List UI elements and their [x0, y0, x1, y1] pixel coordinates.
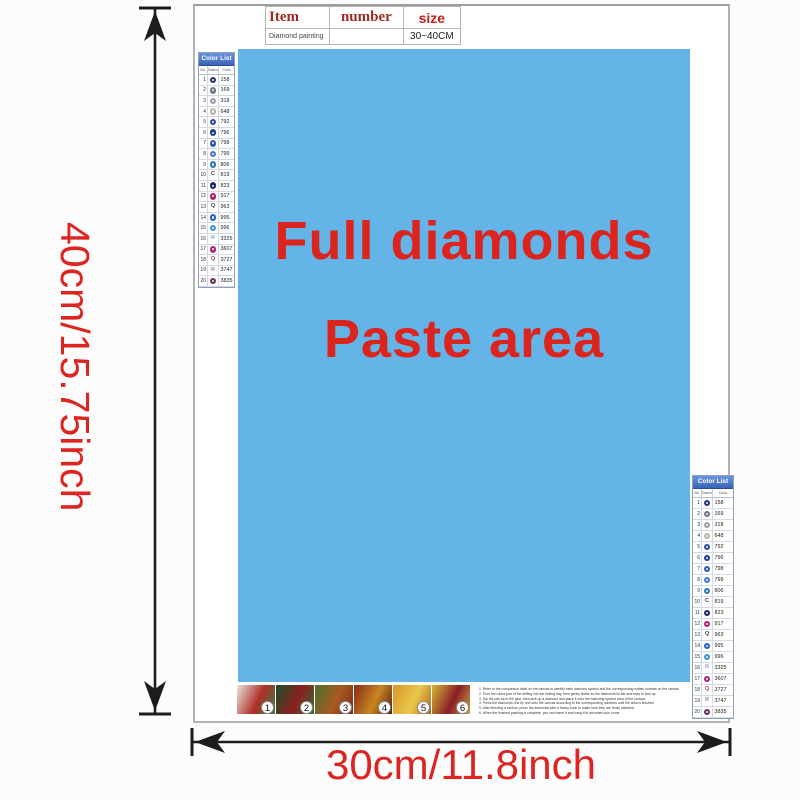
diamond-color-swatch [704, 522, 711, 529]
color-row-symbol [208, 107, 219, 117]
step-image-6: 6 [432, 685, 470, 714]
color-row-code: 806 [219, 162, 234, 168]
color-list-row: 8799 [199, 149, 234, 160]
color-row-symbol: Q [208, 202, 219, 212]
color-row-code: 3325 [713, 665, 733, 671]
color-row-symbol [208, 117, 219, 127]
color-row-code: 819 [219, 172, 234, 178]
color-list-col-diamond: Diamond [702, 489, 713, 497]
diamond-color-swatch [704, 555, 711, 562]
step-image-2: 2 [276, 685, 314, 714]
diamond-color-swatch [704, 610, 711, 617]
diamond-color-swatch [704, 533, 711, 540]
color-list-row: 3318 [693, 520, 733, 531]
color-list-row: 14995 [199, 213, 234, 224]
diamond-color-swatch [210, 193, 217, 200]
color-row-number: 7 [199, 139, 208, 149]
diamond-symbol-letter: C [211, 172, 215, 178]
diamond-color-swatch [210, 108, 217, 115]
width-dimension-label: 30cm/11.8inch [187, 744, 735, 786]
color-row-code: 3835 [219, 278, 234, 284]
color-row-symbol [208, 86, 219, 96]
color-row-code: 3727 [713, 687, 733, 693]
color-row-code: 158 [219, 77, 234, 83]
diamond-color-swatch [210, 151, 217, 158]
color-list-row: 14995 [693, 641, 733, 652]
diamond-color-swatch [704, 621, 711, 628]
diamond-color-swatch [704, 500, 711, 507]
color-list-row: 13Q963 [693, 630, 733, 641]
color-list-column-headers: No. Diamond Color [693, 489, 733, 498]
diamond-color-swatch [210, 119, 217, 126]
color-row-code: 917 [713, 621, 733, 627]
height-dimension-arrow [132, 3, 178, 719]
color-row-code: 3747 [219, 267, 234, 273]
color-row-code: 648 [713, 533, 733, 539]
color-row-code: 169 [713, 511, 733, 517]
color-row-number: 12 [693, 619, 702, 629]
color-row-code: 806 [713, 588, 733, 594]
color-list-row: 6796 [199, 128, 234, 139]
color-row-number: 13 [693, 630, 702, 640]
color-row-symbol [208, 96, 219, 106]
diamond-color-swatch [210, 161, 217, 168]
color-row-number: 17 [693, 674, 702, 684]
color-row-code: 3607 [219, 246, 234, 252]
diamond-color-swatch [210, 214, 217, 221]
color-list-row: 12917 [693, 619, 733, 630]
color-row-number: 16 [199, 234, 208, 244]
color-row-code: 318 [219, 98, 234, 104]
step-number-badge: 4 [378, 701, 391, 714]
color-list-row: 19R3747 [199, 266, 234, 277]
color-list-row: 173607 [693, 674, 733, 685]
color-row-number: 13 [199, 202, 208, 212]
color-row-symbol: Q [702, 630, 713, 640]
color-row-symbol [702, 575, 713, 585]
item-info-table: Item number size Diamond painting 30~40C… [265, 6, 461, 45]
color-row-number: 9 [199, 160, 208, 170]
color-row-code: 996 [713, 654, 733, 660]
color-row-number: 4 [199, 107, 208, 117]
paste-area: Full diamonds Paste area [238, 49, 690, 682]
color-row-number: 20 [199, 276, 208, 286]
color-list-row: 16R3325 [199, 234, 234, 245]
color-list-title: Color List [199, 53, 234, 66]
color-row-symbol [702, 553, 713, 563]
color-list-row: 16R3325 [693, 663, 733, 674]
color-row-code: 995 [219, 215, 234, 221]
diamond-symbol-letter: Q [211, 257, 215, 263]
color-row-number: 6 [693, 553, 702, 563]
item-table-header-row: Item number size [266, 7, 460, 28]
color-row-code: 798 [713, 566, 733, 572]
diamond-symbol-letter: R [211, 268, 215, 274]
item-table-header-item: Item [266, 7, 330, 28]
color-row-symbol: R [208, 234, 219, 244]
color-row-symbol [208, 213, 219, 223]
color-row-symbol [702, 619, 713, 629]
diamond-color-swatch [704, 577, 711, 584]
color-row-number: 3 [199, 96, 208, 106]
instruction-text: 1. Refer to the comparison table on the … [479, 687, 707, 717]
diamond-color-swatch [704, 588, 711, 595]
color-row-number: 10 [693, 597, 702, 607]
color-row-symbol: Q [208, 255, 219, 265]
color-row-code: 963 [713, 632, 733, 638]
color-list-row: 2169 [693, 509, 733, 520]
diamond-color-swatch [210, 129, 217, 136]
color-row-symbol [702, 509, 713, 519]
step-number-badge: 3 [339, 701, 352, 714]
color-row-symbol [702, 652, 713, 662]
color-row-code: 799 [713, 577, 733, 583]
item-size-value: 30~40CM [404, 29, 460, 44]
diamond-color-swatch [210, 225, 217, 232]
color-row-symbol [208, 223, 219, 233]
color-row-symbol [208, 128, 219, 138]
color-row-number: 6 [199, 128, 208, 138]
color-list-row: 7798 [693, 564, 733, 575]
color-list-title: Color List [693, 476, 733, 489]
color-row-code: 996 [219, 225, 234, 231]
color-row-number: 9 [693, 586, 702, 596]
color-row-symbol: R [208, 266, 219, 276]
color-list-row: 2169 [199, 86, 234, 97]
color-list-row: 13Q963 [199, 202, 234, 213]
step-number-badge: 5 [417, 701, 430, 714]
color-list-column-headers: No. Diamond Color [199, 66, 234, 75]
color-row-symbol: C [702, 597, 713, 607]
color-list-col-color: Color [713, 489, 733, 497]
color-row-code: 3325 [219, 236, 234, 242]
paste-area-title-line1: Full diamonds [274, 214, 653, 268]
diamond-color-swatch [210, 278, 217, 285]
color-list-row: 4648 [693, 531, 733, 542]
color-row-code: 792 [219, 119, 234, 125]
step-image-5: 5 [393, 685, 431, 714]
color-list-left: Color List No. Diamond Color 11582169331… [198, 52, 235, 288]
color-row-number: 11 [693, 608, 702, 618]
color-row-symbol [702, 641, 713, 651]
color-list-row: 15996 [693, 652, 733, 663]
color-row-symbol [208, 149, 219, 159]
color-row-code: 3747 [713, 698, 733, 704]
color-row-symbol [208, 276, 219, 286]
color-row-number: 10 [199, 170, 208, 180]
height-dimension-label: 40cm/15.75inch [54, 222, 95, 532]
color-row-number: 14 [693, 641, 702, 651]
color-row-symbol [702, 498, 713, 508]
color-row-number: 7 [693, 564, 702, 574]
color-row-number: 8 [199, 149, 208, 159]
color-row-code: 917 [219, 193, 234, 199]
diamond-color-swatch [704, 511, 711, 518]
color-row-number: 8 [693, 575, 702, 585]
color-row-symbol: R [702, 663, 713, 673]
diamond-symbol-letter: Q [705, 632, 709, 638]
diamond-color-swatch [210, 98, 217, 105]
diamond-symbol-letter: Q [211, 204, 215, 210]
color-row-number: 16 [693, 663, 702, 673]
color-row-number: 2 [199, 86, 208, 96]
color-list-col-diamond: Diamond [208, 66, 219, 74]
color-row-symbol [208, 192, 219, 202]
color-list-rows: 11582169331846485792679677988799980610C8… [693, 498, 733, 718]
step-number-badge: 1 [261, 701, 274, 714]
diamond-color-swatch [704, 654, 711, 661]
color-list-row: 173607 [199, 245, 234, 256]
color-row-number: 15 [693, 652, 702, 662]
color-list-row: 5792 [199, 117, 234, 128]
diamond-color-swatch [704, 676, 711, 683]
color-row-number: 14 [199, 213, 208, 223]
color-row-number: 19 [199, 266, 208, 276]
color-row-code: 819 [713, 599, 733, 605]
color-list-row: 4648 [199, 107, 234, 118]
color-row-code: 648 [219, 109, 234, 115]
color-row-number: 18 [199, 255, 208, 265]
paste-area-title-line2: Paste area [324, 312, 604, 366]
color-row-code: 3607 [713, 676, 733, 682]
color-row-code: 995 [713, 643, 733, 649]
color-list-row: 1158 [693, 498, 733, 509]
color-list-right: Color List No. Diamond Color 11582169331… [692, 475, 734, 719]
color-row-code: 963 [219, 204, 234, 210]
color-row-number: 1 [693, 498, 702, 508]
canvas-sheet: Item number size Diamond painting 30~40C… [193, 4, 730, 723]
color-row-symbol [208, 160, 219, 170]
item-table-value-row: Diamond painting 30~40CM [266, 28, 460, 44]
color-row-symbol [208, 245, 219, 255]
color-row-number: 12 [199, 192, 208, 202]
color-list-row: 5792 [693, 542, 733, 553]
diamond-symbol-letter: C [705, 599, 709, 605]
diamond-color-swatch [210, 246, 217, 253]
color-row-code: 792 [713, 544, 733, 550]
item-table-header-size: size [404, 7, 460, 28]
diamond-symbol-letter: R [705, 665, 709, 671]
color-row-number: 5 [199, 117, 208, 127]
diamond-color-swatch [210, 140, 217, 147]
color-list-row: 9806 [199, 160, 234, 171]
color-row-number: 3 [693, 520, 702, 530]
color-list-row: 10C819 [199, 170, 234, 181]
color-row-code: 798 [219, 140, 234, 146]
color-list-row: 10C819 [693, 597, 733, 608]
color-list-row: 12917 [199, 192, 234, 203]
step-image-1: 1 [237, 685, 275, 714]
color-list-rows: 11582169331846485792679677988799980610C8… [199, 75, 234, 287]
color-row-symbol [702, 608, 713, 618]
color-row-symbol [208, 75, 219, 85]
item-name-value: Diamond painting [266, 29, 330, 44]
color-list-row: 7798 [199, 139, 234, 150]
color-row-number: 17 [199, 245, 208, 255]
color-list-col-no: No. [693, 489, 702, 497]
color-row-number: 2 [693, 509, 702, 519]
color-row-code: 796 [219, 130, 234, 136]
color-list-col-no: No. [199, 66, 208, 74]
color-row-number: 11 [199, 181, 208, 191]
color-row-symbol [208, 139, 219, 149]
color-list-row: 15996 [199, 223, 234, 234]
diamond-symbol-letter: R [211, 236, 215, 242]
color-row-code: 796 [713, 555, 733, 561]
color-row-code: 823 [219, 183, 234, 189]
color-list-col-color: Color [219, 66, 234, 74]
item-table-header-number: number [330, 7, 404, 28]
color-row-code: 3727 [219, 257, 234, 263]
color-row-symbol [702, 520, 713, 530]
diamond-color-swatch [704, 643, 711, 650]
color-row-number: 1 [199, 75, 208, 85]
color-row-code: 3835 [713, 709, 733, 715]
color-row-code: 799 [219, 151, 234, 157]
step-image-3: 3 [315, 685, 353, 714]
color-list-row: 1158 [199, 75, 234, 86]
color-list-row: 8799 [693, 575, 733, 586]
color-list-row: 203835 [199, 276, 234, 287]
step-image-4: 4 [354, 685, 392, 714]
diamond-color-swatch [210, 87, 217, 94]
instruction-line: 6. When the finished painting is complet… [479, 711, 707, 716]
item-number-value [330, 29, 404, 44]
color-row-symbol [208, 181, 219, 191]
color-list-row: 9806 [693, 586, 733, 597]
color-row-symbol [702, 542, 713, 552]
color-list-row: 3318 [199, 96, 234, 107]
color-list-row: 18Q3727 [199, 255, 234, 266]
diamond-color-swatch [210, 182, 217, 189]
color-row-code: 158 [713, 500, 733, 506]
color-row-number: 15 [199, 223, 208, 233]
color-row-symbol [702, 531, 713, 541]
color-row-symbol [702, 674, 713, 684]
color-row-code: 823 [713, 610, 733, 616]
color-list-row: 11823 [693, 608, 733, 619]
color-row-symbol [702, 586, 713, 596]
diamond-color-swatch [704, 566, 711, 573]
step-number-badge: 2 [300, 701, 313, 714]
color-list-row: 6796 [693, 553, 733, 564]
color-row-number: 5 [693, 542, 702, 552]
color-row-code: 318 [713, 522, 733, 528]
step-number-badge: 6 [456, 701, 469, 714]
diamond-color-swatch [704, 544, 711, 551]
color-row-symbol [702, 564, 713, 574]
color-list-row: 11823 [199, 181, 234, 192]
diamond-color-swatch [210, 77, 217, 84]
color-row-symbol: C [208, 170, 219, 180]
step-images: 123456 [237, 685, 470, 715]
color-row-number: 4 [693, 531, 702, 541]
color-row-code: 169 [219, 87, 234, 93]
